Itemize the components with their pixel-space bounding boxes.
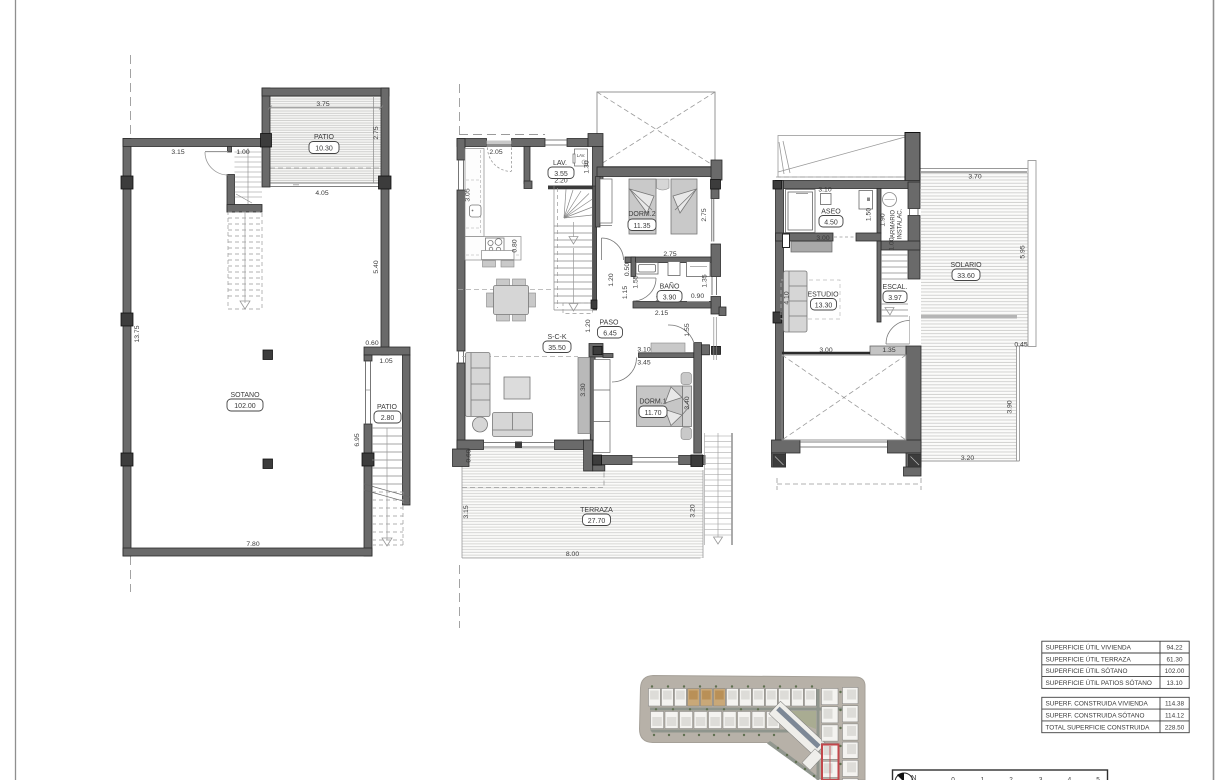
svg-text:2: 2 bbox=[1009, 777, 1013, 780]
svg-text:3.97: 3.97 bbox=[888, 295, 902, 302]
svg-text:3.90: 3.90 bbox=[1007, 400, 1014, 413]
svg-text:1.55: 1.55 bbox=[684, 323, 691, 336]
svg-text:SUPERFICIE ÚTIL VIVIENDA: SUPERFICIE ÚTIL VIVIENDA bbox=[1046, 643, 1132, 652]
svg-text:3.10: 3.10 bbox=[818, 187, 831, 194]
svg-text:3.20: 3.20 bbox=[961, 455, 974, 462]
svg-text:5: 5 bbox=[1096, 777, 1100, 780]
svg-text:27.70: 27.70 bbox=[588, 518, 606, 525]
svg-text:3.10: 3.10 bbox=[637, 347, 650, 354]
svg-text:11.70: 11.70 bbox=[645, 410, 662, 417]
svg-text:4.10: 4.10 bbox=[784, 291, 791, 304]
svg-text:1.20: 1.20 bbox=[608, 273, 615, 286]
svg-text:4.05: 4.05 bbox=[315, 190, 328, 197]
svg-text:33.60: 33.60 bbox=[957, 273, 975, 280]
svg-text:LAV.: LAV. bbox=[577, 153, 585, 158]
svg-text:SUPERFICIE ÚTIL PATIOS SÓTANO: SUPERFICIE ÚTIL PATIOS SÓTANO bbox=[1046, 678, 1152, 687]
svg-text:2.75: 2.75 bbox=[663, 251, 676, 258]
svg-text:10.30: 10.30 bbox=[315, 146, 333, 153]
svg-text:1.55: 1.55 bbox=[633, 275, 640, 288]
svg-text:1.00: 1.00 bbox=[889, 237, 896, 250]
svg-text:3.05: 3.05 bbox=[465, 188, 472, 201]
svg-text:13.75: 13.75 bbox=[134, 325, 141, 342]
svg-text:SUPERF. CONSTRUIDA SÓTANO: SUPERF. CONSTRUIDA SÓTANO bbox=[1046, 711, 1145, 720]
svg-text:3.75: 3.75 bbox=[316, 101, 329, 108]
svg-text:DORM.1: DORM.1 bbox=[639, 399, 666, 406]
svg-text:ESCAL.: ESCAL. bbox=[883, 284, 908, 291]
svg-text:0.60: 0.60 bbox=[466, 449, 473, 462]
svg-text:1.15: 1.15 bbox=[622, 286, 629, 299]
svg-text:3.00: 3.00 bbox=[816, 235, 829, 242]
svg-text:1.20: 1.20 bbox=[585, 319, 592, 332]
svg-text:3.00: 3.00 bbox=[819, 347, 832, 354]
svg-text:5.95: 5.95 bbox=[1020, 245, 1027, 258]
svg-text:1.05: 1.05 bbox=[379, 358, 392, 365]
svg-text:TERRAZA: TERRAZA bbox=[580, 507, 613, 514]
svg-text:1.35: 1.35 bbox=[702, 274, 709, 287]
svg-text:6.45: 6.45 bbox=[603, 331, 617, 338]
svg-text:0: 0 bbox=[951, 777, 955, 780]
svg-text:3.45: 3.45 bbox=[637, 360, 650, 367]
svg-text:3.15: 3.15 bbox=[171, 149, 184, 156]
svg-text:3.40: 3.40 bbox=[684, 396, 691, 409]
svg-text:0.45: 0.45 bbox=[1014, 342, 1027, 349]
svg-text:0.80: 0.80 bbox=[512, 239, 519, 252]
svg-text:INSTALAC.: INSTALAC. bbox=[898, 208, 904, 239]
svg-text:ASEO: ASEO bbox=[821, 209, 841, 216]
svg-text:3.20: 3.20 bbox=[690, 504, 697, 517]
svg-text:1.30: 1.30 bbox=[584, 160, 591, 173]
svg-text:102.00: 102.00 bbox=[234, 403, 256, 410]
svg-text:PASO: PASO bbox=[600, 320, 619, 327]
svg-text:2.75: 2.75 bbox=[373, 126, 380, 139]
svg-text:S-C-K: S-C-K bbox=[547, 334, 566, 341]
svg-text:3.30: 3.30 bbox=[580, 383, 587, 396]
svg-text:1: 1 bbox=[981, 777, 985, 780]
svg-text:2.05: 2.05 bbox=[489, 149, 502, 156]
svg-text:3.15: 3.15 bbox=[463, 505, 470, 518]
svg-text:1.00: 1.00 bbox=[236, 149, 249, 156]
svg-text:N: N bbox=[911, 773, 916, 780]
svg-text:114.38: 114.38 bbox=[1165, 701, 1185, 708]
svg-text:ARMARIO: ARMARIO bbox=[891, 210, 897, 238]
svg-text:35.50: 35.50 bbox=[548, 345, 566, 352]
svg-text:SUPERFICIE ÚTIL SÓTANO: SUPERFICIE ÚTIL SÓTANO bbox=[1046, 666, 1128, 675]
svg-text:3.90: 3.90 bbox=[663, 295, 677, 302]
svg-text:102.00: 102.00 bbox=[1165, 668, 1185, 675]
svg-text:1.50: 1.50 bbox=[866, 208, 873, 221]
svg-text:3: 3 bbox=[1039, 777, 1043, 780]
svg-text:11.35: 11.35 bbox=[634, 223, 651, 230]
svg-text:1.90: 1.90 bbox=[880, 213, 887, 226]
svg-text:SOTANO: SOTANO bbox=[230, 392, 260, 399]
svg-text:DORM.2: DORM.2 bbox=[628, 211, 655, 218]
svg-text:8.00: 8.00 bbox=[566, 551, 579, 558]
svg-text:PATIO: PATIO bbox=[314, 134, 335, 141]
svg-text:1.35: 1.35 bbox=[882, 347, 895, 354]
svg-text:13.30: 13.30 bbox=[815, 303, 833, 310]
svg-text:2.80: 2.80 bbox=[381, 415, 395, 422]
svg-text:114.12: 114.12 bbox=[1165, 713, 1185, 720]
svg-text:0.60: 0.60 bbox=[365, 340, 378, 347]
svg-text:PATIO: PATIO bbox=[377, 404, 398, 411]
svg-text:3.70: 3.70 bbox=[968, 174, 981, 181]
svg-text:228.50: 228.50 bbox=[1165, 724, 1185, 731]
svg-text:0.90: 0.90 bbox=[691, 293, 704, 300]
svg-text:4.50: 4.50 bbox=[824, 220, 838, 227]
svg-text:SUPERF. CONSTRUIDA VIVIENDA: SUPERF. CONSTRUIDA VIVIENDA bbox=[1046, 701, 1149, 708]
svg-text:3.55: 3.55 bbox=[554, 171, 568, 178]
svg-text:0.50: 0.50 bbox=[624, 263, 631, 276]
svg-text:7.80: 7.80 bbox=[246, 541, 259, 548]
svg-text:SOLARIO: SOLARIO bbox=[950, 262, 982, 269]
svg-text:2.75: 2.75 bbox=[701, 208, 708, 221]
svg-text:SUPERFICIE ÚTIL TERRAZA: SUPERFICIE ÚTIL TERRAZA bbox=[1046, 654, 1132, 663]
svg-text:6.95: 6.95 bbox=[354, 433, 361, 446]
svg-text:5.40: 5.40 bbox=[373, 260, 380, 273]
svg-text:ESTUDIO: ESTUDIO bbox=[807, 292, 839, 299]
svg-text:LAV.: LAV. bbox=[553, 160, 567, 167]
svg-text:BAÑO: BAÑO bbox=[660, 282, 680, 291]
svg-text:13.10: 13.10 bbox=[1167, 680, 1183, 687]
svg-text:2.15: 2.15 bbox=[655, 310, 668, 317]
svg-text:4: 4 bbox=[1068, 777, 1072, 780]
svg-text:94.22: 94.22 bbox=[1167, 645, 1183, 652]
svg-text:TOTAL SUPERFICIE CONSTRUIDA: TOTAL SUPERFICIE CONSTRUIDA bbox=[1046, 724, 1151, 731]
svg-text:61.30: 61.30 bbox=[1167, 656, 1183, 663]
